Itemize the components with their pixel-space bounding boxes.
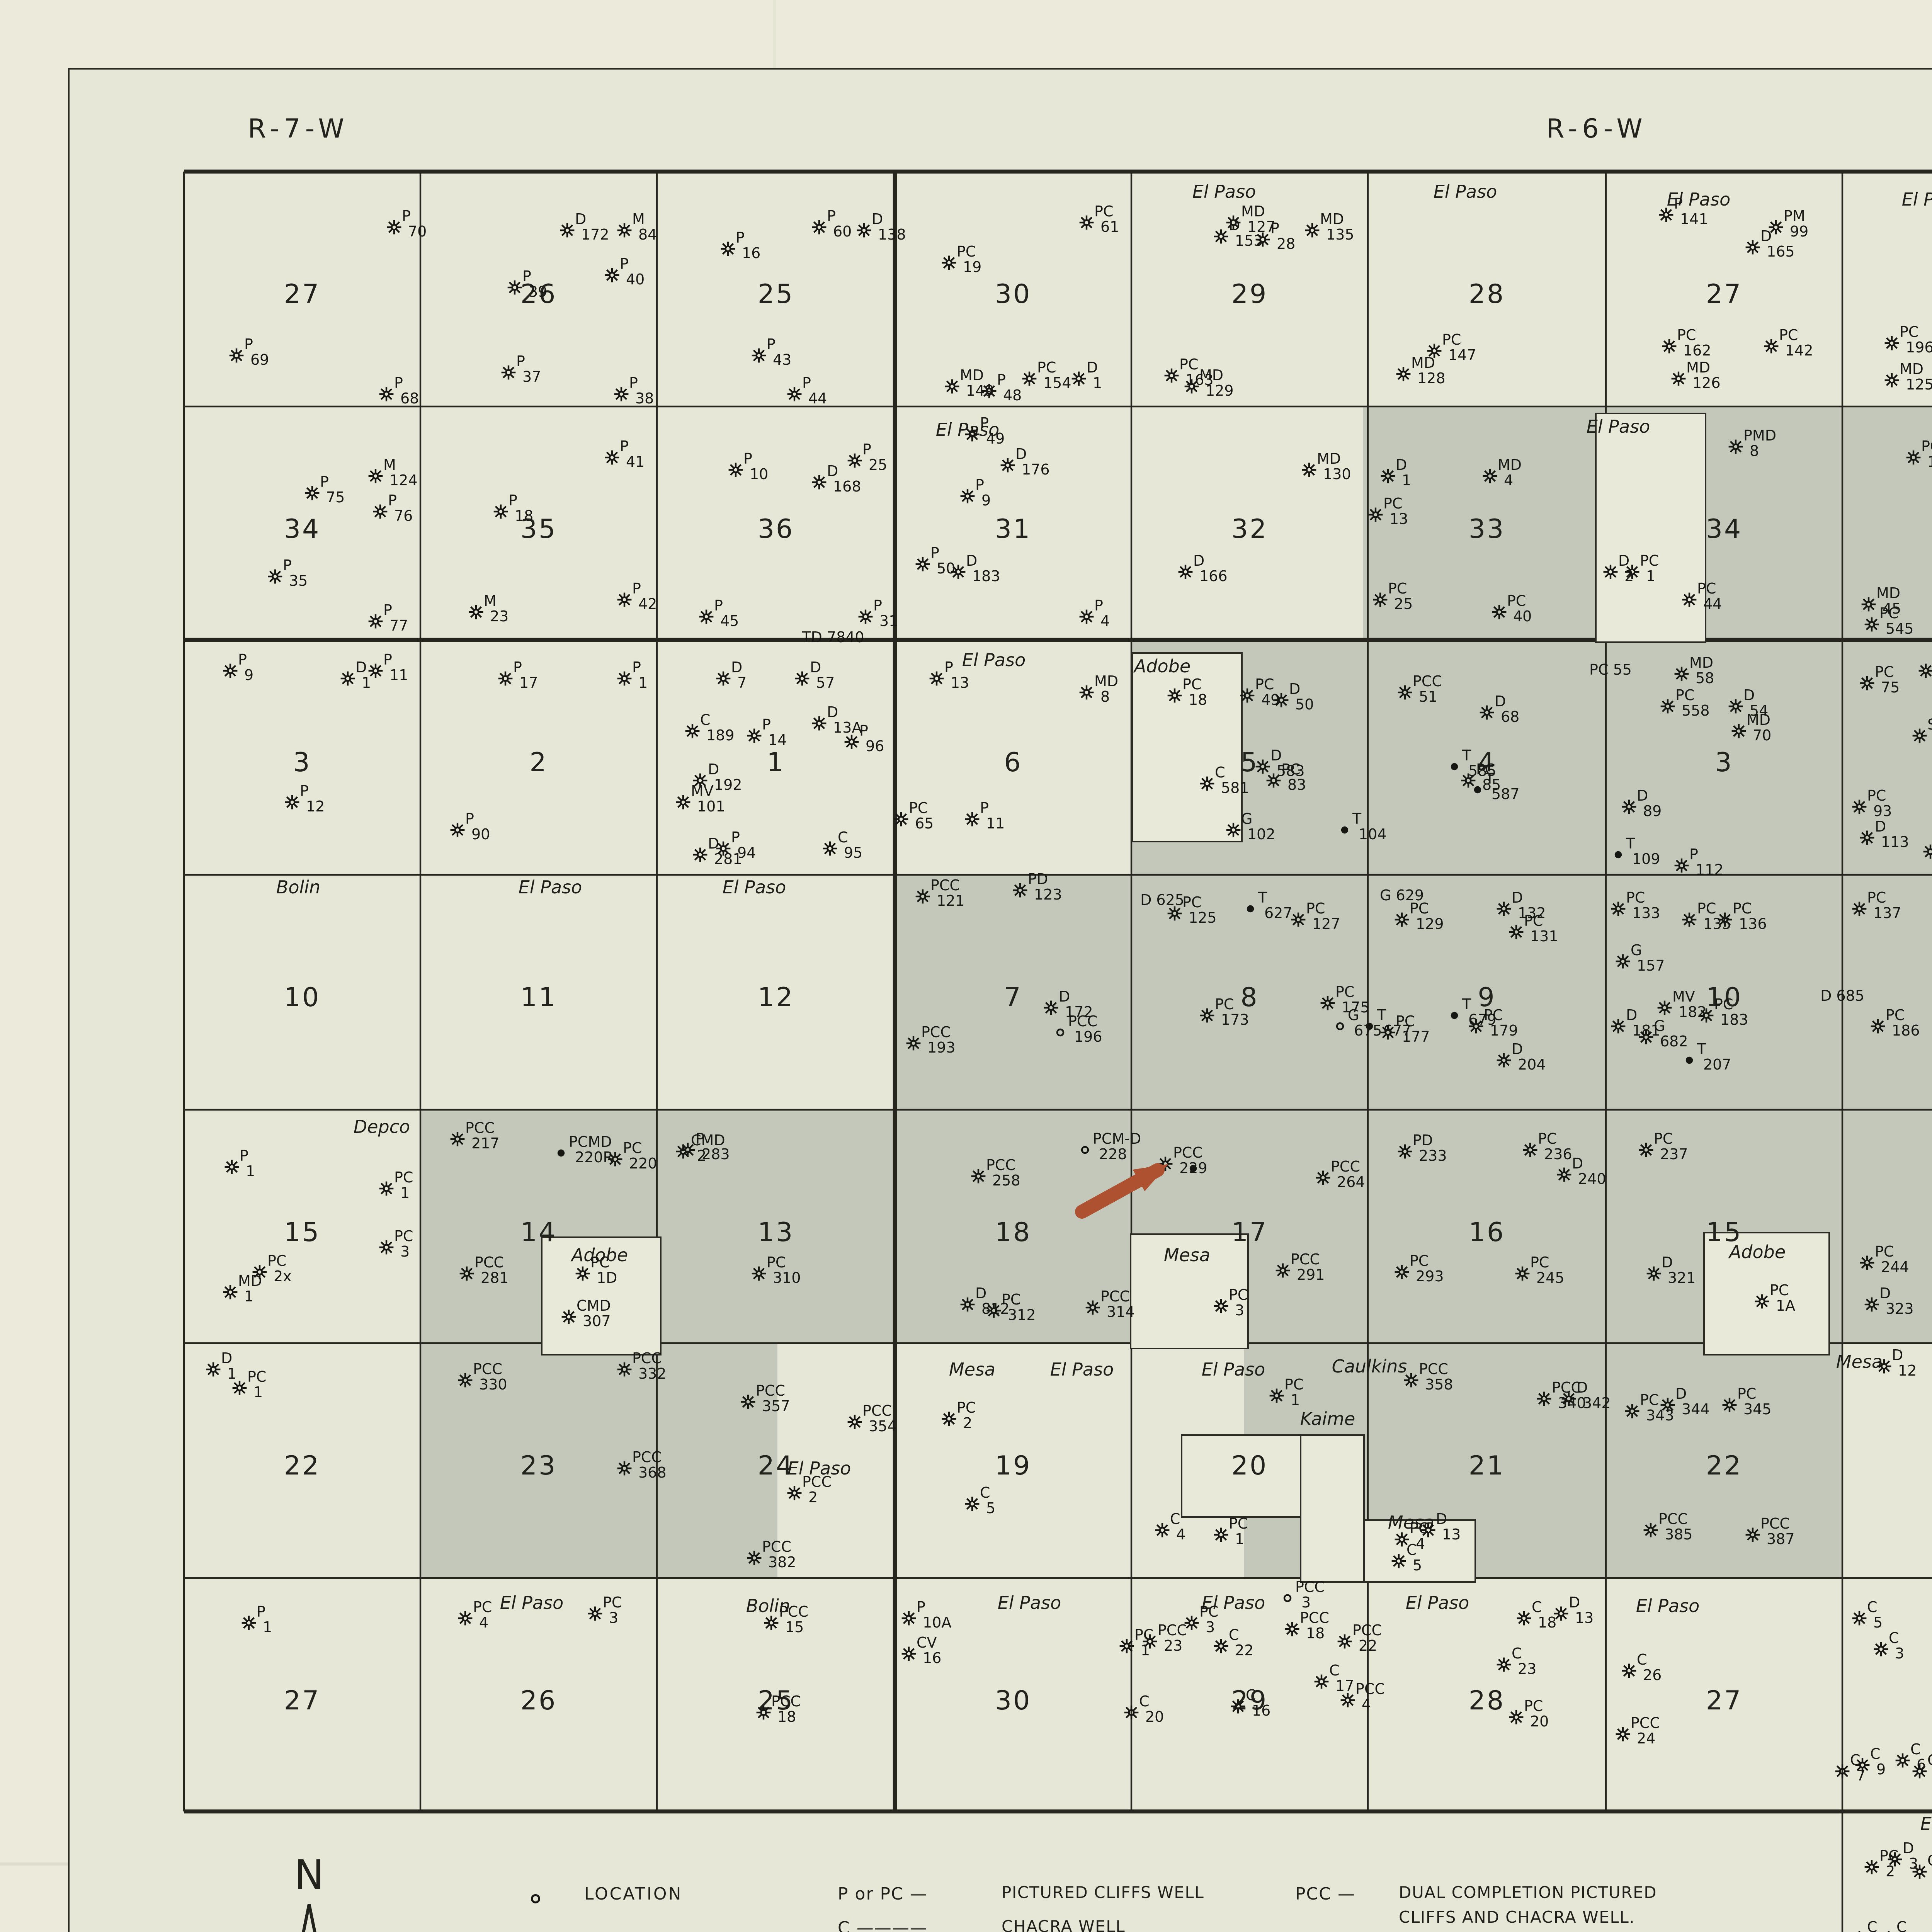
legend-item-label: LOCATION <box>584 1884 682 1904</box>
north-arrow: N <box>0 0 1932 1932</box>
legend-code-text: PICTURED CLIFFS WELL <box>1002 1884 1204 1903</box>
north-letter: N <box>294 1851 324 1898</box>
legend-code-text: CHACRA WELL <box>1002 1918 1125 1932</box>
legend-code-key: P or PC — <box>838 1884 928 1904</box>
loc-legend-icon <box>526 1886 546 1906</box>
legend-code-text: CLIFFS AND CHACRA WELL. <box>1399 1909 1635 1927</box>
legend-code-key: PCC — <box>1295 1884 1355 1904</box>
legend-code-key: C ———— <box>838 1918 928 1932</box>
scanned-plat-map-page: R-7-WR-6-WR-5-WT 27 NT 26 N2726253029282… <box>0 0 1932 1932</box>
legend-code-text: DUAL COMPLETION PICTURED <box>1399 1884 1657 1903</box>
